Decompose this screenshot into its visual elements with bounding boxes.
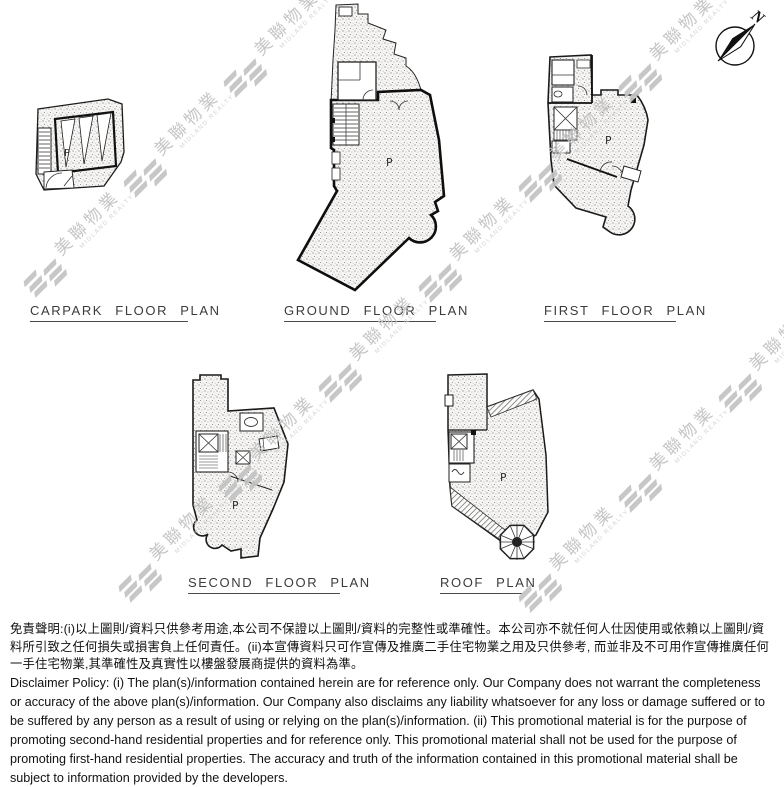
midland-bars-logo-icon (114, 556, 163, 605)
plan-title-ground: GROUND FLOOR PLAN (284, 303, 436, 322)
watermark-text: 美聯物業 (152, 80, 230, 158)
plan-title-roof: ROOF PLAN (440, 575, 522, 594)
second-floor-plan-drawing: P (186, 370, 294, 566)
disclaimer-text-chinese: 免責聲明:(i)以上圖則/資料只供參考用途,本公司不保證以上圖則/資料的完整性或… (10, 621, 774, 674)
compass-north-icon: N (705, 4, 775, 74)
midland-bars-logo-icon (19, 251, 68, 300)
watermark-text: 美聯物業 (447, 185, 525, 263)
carpark-floor-plan-drawing: P (28, 92, 138, 197)
first-area-label: P (605, 134, 612, 147)
watermark-text: 美聯物業 (747, 295, 784, 373)
midland-bars-logo-icon (219, 51, 268, 100)
roof-plan-drawing: P (441, 370, 555, 570)
disclaimer-block: 免責聲明:(i)以上圖則/資料只供參考用途,本公司不保證以上圖則/資料的完整性或… (10, 621, 774, 787)
second-area-label: P (232, 499, 239, 512)
watermark-body: 美聯物業 MIDLAND REALTY (547, 495, 631, 579)
ground-area-label: P (386, 156, 393, 169)
watermark: 美聯物業 MIDLAND REALTY (19, 180, 140, 301)
watermark-body: 美聯物業 MIDLAND REALTY (152, 80, 236, 164)
watermark-subtext: MIDLAND REALTY (474, 198, 531, 255)
midland-bars-logo-icon (614, 466, 663, 515)
roof-area-label: P (500, 471, 507, 484)
watermark-text: 美聯物業 (647, 395, 725, 473)
carpark-area-label: P (64, 148, 70, 159)
plan-title-carpark: CARPARK FLOOR PLAN (30, 303, 188, 322)
first-floor-plan-drawing: P (543, 48, 661, 248)
watermark-subtext: MIDLAND REALTY (79, 193, 136, 250)
watermark-subtext: MIDLAND REALTY (774, 308, 784, 365)
watermark-body: 美聯物業 MIDLAND REALTY (747, 295, 784, 379)
watermark-text: 美聯物業 (547, 495, 625, 573)
watermark-subtext: MIDLAND REALTY (574, 508, 631, 565)
plan-title-second: SECOND FLOOR PLAN (188, 575, 340, 594)
watermark: 美聯物業 MIDLAND REALTY (614, 395, 735, 516)
watermark-subtext: MIDLAND REALTY (179, 93, 236, 150)
compass-n-label: N (747, 6, 768, 28)
watermark: 美聯物業 MIDLAND REALTY (714, 295, 784, 416)
floorplan-sheet: 美聯物業 MIDLAND REALTY 美聯物業 MIDLAND REALTY … (0, 0, 784, 779)
disclaimer-text-english: Disclaimer Policy: (i) The plan(s)/infor… (10, 674, 774, 787)
ground-floor-plan-drawing: P (278, 0, 450, 300)
plan-title-first: FIRST FLOOR PLAN (544, 303, 676, 322)
watermark-subtext: MIDLAND REALTY (674, 408, 731, 465)
midland-bars-logo-icon (314, 356, 363, 405)
midland-bars-logo-icon (714, 366, 763, 415)
watermark-body: 美聯物業 MIDLAND REALTY (647, 395, 731, 479)
watermark-body: 美聯物業 MIDLAND REALTY (447, 185, 531, 269)
